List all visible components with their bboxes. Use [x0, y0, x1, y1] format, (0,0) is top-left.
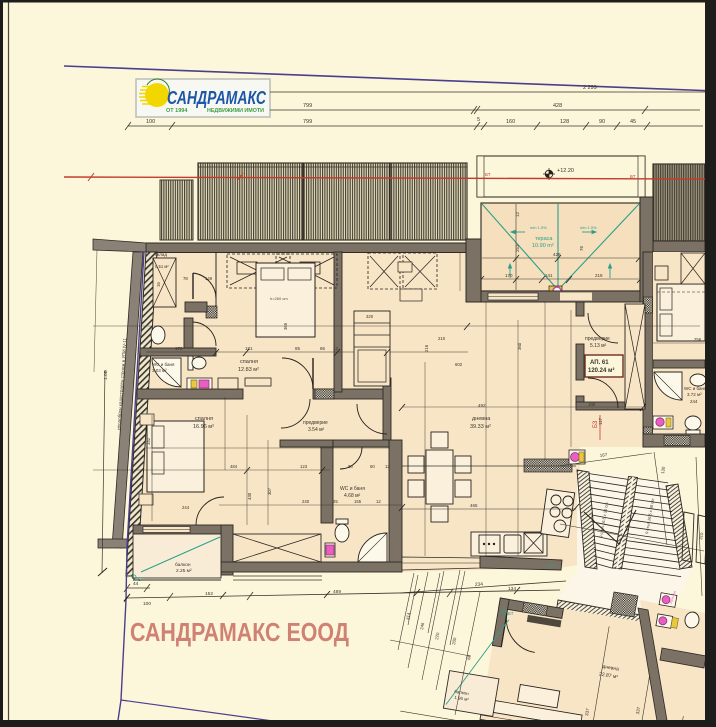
svg-text:100: 100: [146, 119, 155, 125]
svg-text:25: 25: [333, 499, 338, 504]
svg-text:149: 149: [205, 276, 213, 281]
svg-text:117: 117: [598, 418, 603, 425]
svg-text:489: 489: [333, 589, 341, 595]
svg-text:5.13 м²: 5.13 м²: [590, 343, 607, 349]
svg-text:210: 210: [438, 336, 446, 341]
svg-text:12: 12: [385, 464, 390, 469]
svg-text:80: 80: [348, 464, 353, 469]
svg-text:141: 141: [545, 273, 553, 278]
svg-text:100: 100: [143, 601, 151, 607]
svg-text:склад: склад: [155, 252, 167, 257]
svg-text:5: 5: [477, 117, 480, 123]
svg-text:БТ: БТ: [508, 611, 514, 616]
svg-text:256: 256: [694, 337, 702, 342]
svg-text:2.25 м²: 2.25 м²: [176, 568, 192, 574]
svg-text:12: 12: [515, 212, 520, 218]
svg-text:128: 128: [560, 119, 569, 125]
svg-text:244: 244: [182, 505, 190, 510]
svg-text:100: 100: [588, 402, 596, 407]
svg-text:3.54 м²: 3.54 м²: [308, 427, 325, 433]
svg-text:244: 244: [690, 399, 698, 404]
svg-text:160: 160: [506, 119, 515, 125]
svg-text:240: 240: [302, 499, 310, 504]
svg-text:60: 60: [370, 464, 375, 469]
svg-text:спалня: спалня: [195, 416, 213, 422]
svg-text:85: 85: [295, 346, 301, 351]
svg-text:216: 216: [424, 344, 429, 352]
svg-text:+12.20: +12.20: [557, 168, 574, 174]
svg-text:45: 45: [630, 119, 636, 125]
svg-text:НЕДВИЖИМИ ИМОТИ: НЕДВИЖИМИ ИМОТИ: [207, 108, 264, 114]
svg-text:484: 484: [230, 464, 238, 469]
svg-text:WC и баня: WC и баня: [684, 386, 707, 391]
svg-text:342: 342: [146, 437, 151, 445]
svg-text:320: 320: [366, 314, 374, 319]
svg-text:12.83 м²: 12.83 м²: [238, 367, 259, 373]
svg-text:78: 78: [183, 276, 188, 281]
svg-text:152: 152: [205, 591, 213, 597]
svg-text:спалня: спалня: [240, 359, 258, 365]
svg-text:3.72 м²: 3.72 м²: [687, 392, 702, 397]
svg-text:предверие: предверие: [303, 420, 328, 426]
svg-text:0.51 м²: 0.51 м²: [155, 264, 169, 269]
svg-text:h=260 cm: h=260 cm: [270, 296, 288, 301]
svg-text:16: 16: [156, 282, 161, 287]
svg-text:10.90 m²: 10.90 m²: [532, 243, 554, 249]
svg-text:428: 428: [553, 103, 562, 109]
svg-text:САНДРАМАКС: САНДРАМАКС: [167, 87, 266, 108]
svg-text:БТ: БТ: [485, 172, 491, 177]
svg-text:123: 123: [300, 464, 308, 469]
svg-text:тераса: тераса: [535, 236, 553, 242]
svg-text:465: 465: [470, 503, 478, 508]
svg-text:360: 360: [517, 342, 522, 350]
svg-text:АП. 61: АП. 61: [590, 360, 609, 366]
svg-text:БТ: БТ: [548, 563, 554, 568]
svg-text:234: 234: [475, 581, 484, 588]
svg-text:балкон: балкон: [175, 562, 191, 568]
svg-text:172: 172: [175, 346, 183, 351]
svg-text:307: 307: [267, 487, 272, 495]
svg-text:WC и баня: WC и баня: [340, 486, 365, 492]
svg-text:253: 253: [515, 244, 520, 252]
svg-text:44: 44: [133, 581, 139, 587]
svg-text:365: 365: [283, 322, 288, 330]
svg-text:799: 799: [303, 103, 312, 109]
svg-text:218: 218: [595, 273, 603, 278]
svg-text:602: 602: [455, 362, 463, 367]
svg-text:155: 155: [354, 499, 362, 504]
svg-text:170: 170: [505, 273, 513, 278]
svg-text:WC и баня: WC и баня: [152, 362, 175, 367]
svg-text:1.0Б: 1.0Б: [103, 370, 109, 380]
svg-text:ОТ 1994: ОТ 1994: [166, 108, 188, 114]
svg-text:3.03 м²: 3.03 м²: [152, 368, 167, 373]
svg-text:39.33 м²: 39.33 м²: [470, 424, 491, 430]
svg-text:БТ: БТ: [138, 577, 144, 582]
svg-text:16.96 м²: 16.96 м²: [193, 424, 214, 430]
svg-text:2 299: 2 299: [583, 85, 597, 91]
svg-text:181: 181: [245, 346, 253, 351]
svg-text:799: 799: [303, 119, 312, 125]
svg-text:90: 90: [599, 119, 605, 125]
svg-text:134: 134: [508, 586, 516, 592]
svg-text:min 1.5%: min 1.5%: [530, 225, 547, 230]
svg-text:86: 86: [320, 346, 326, 351]
svg-text:САНДРАМАКС ЕООД: САНДРАМАКС ЕООД: [130, 617, 349, 647]
svg-text:76: 76: [579, 245, 584, 251]
svg-text:12: 12: [333, 346, 339, 351]
svg-text:430: 430: [247, 492, 252, 500]
svg-text:12: 12: [376, 499, 381, 504]
svg-text:дневна: дневна: [472, 416, 491, 422]
svg-text:120.24 м²: 120.24 м²: [588, 367, 614, 374]
svg-text:min 1.5%: min 1.5%: [580, 225, 597, 230]
